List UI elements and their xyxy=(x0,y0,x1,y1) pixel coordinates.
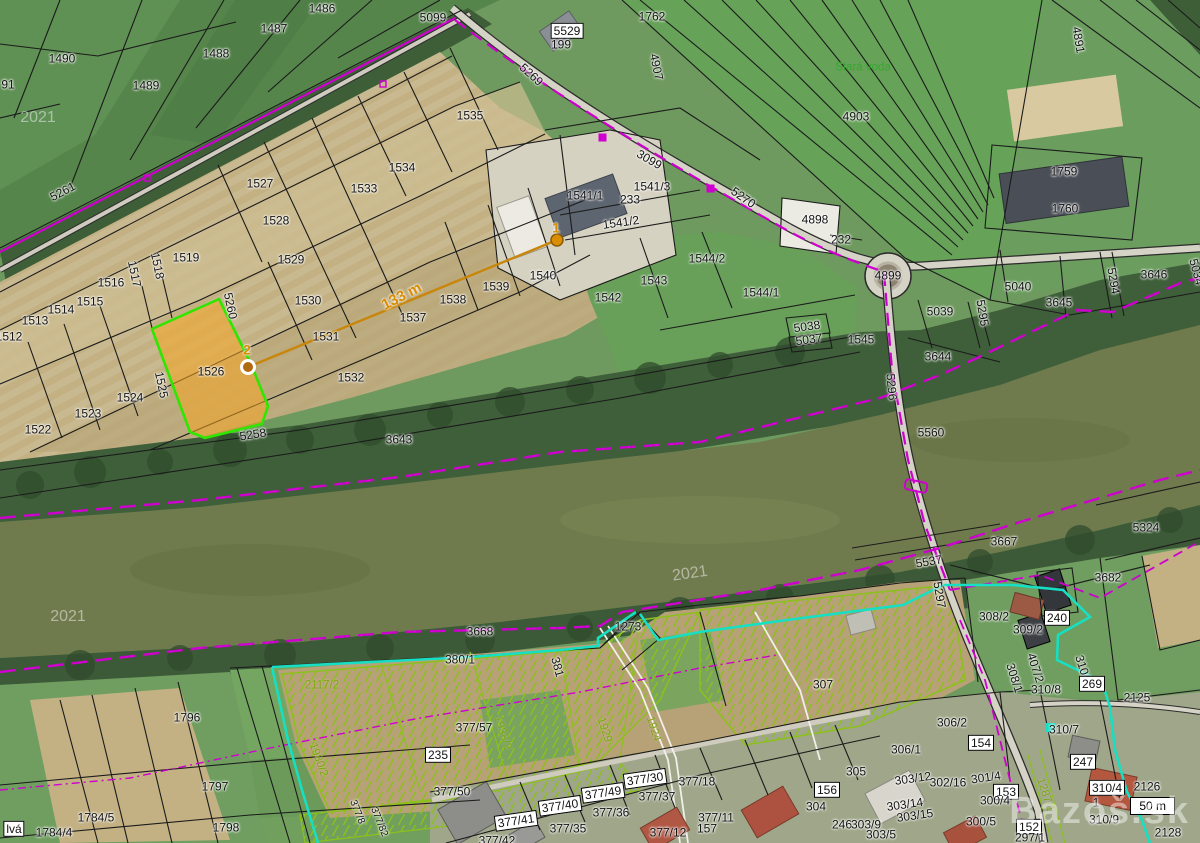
map-viewport[interactable]: 9114901489148814871486202152615099552919… xyxy=(0,0,1200,843)
aerial-basemap xyxy=(0,0,1200,843)
scale-bar-label: 50 m xyxy=(1139,799,1166,813)
measure-point-2[interactable] xyxy=(242,361,255,374)
measure-point-1[interactable] xyxy=(551,234,563,246)
cyan-marker-310-7 xyxy=(1046,723,1055,732)
scale-bar: 50 m xyxy=(1130,797,1175,815)
